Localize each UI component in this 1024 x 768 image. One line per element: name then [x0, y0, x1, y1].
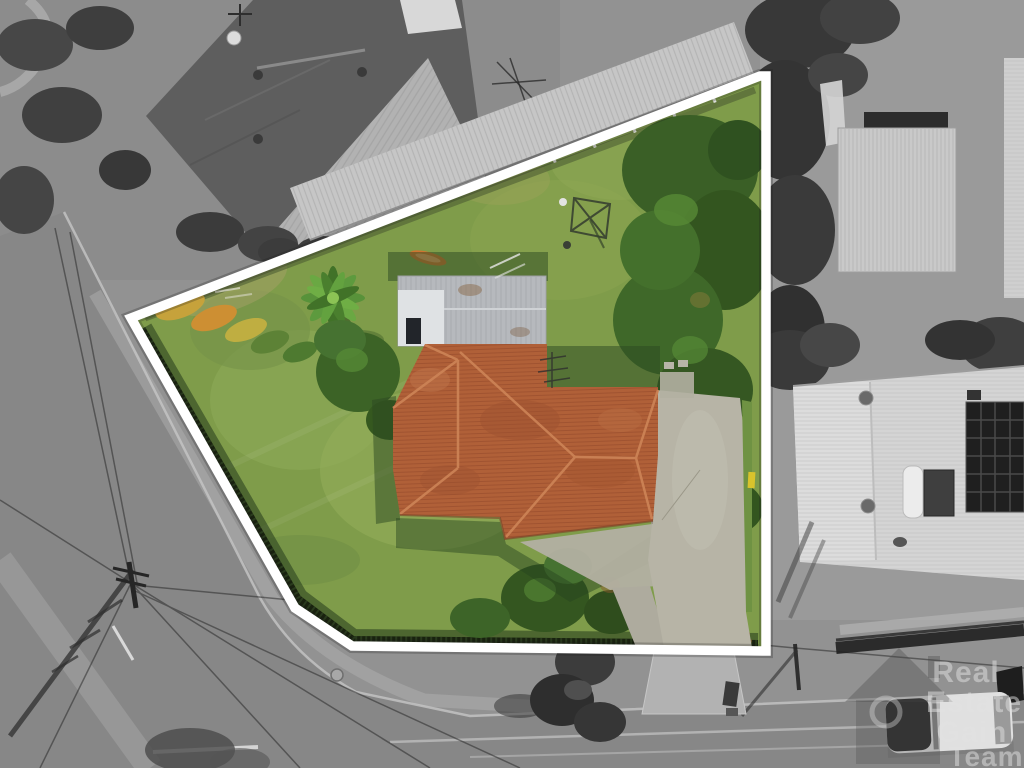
aerial-photo-canvas: Real Estate Gain Team [0, 0, 1024, 768]
garage-doorway [406, 318, 421, 344]
watermark-line-2: Estate [926, 686, 1022, 719]
manhole-cover [331, 669, 343, 681]
roof-vent [859, 391, 873, 405]
shed-shadow [864, 112, 948, 128]
watermark-line-1: Real [932, 656, 999, 689]
aerial-photo: Real Estate Gain Team [0, 0, 1024, 768]
hot-water-cylinder [903, 466, 923, 518]
satellite-dish [227, 31, 241, 45]
watermark-line-4: Team [948, 741, 1023, 768]
yellow-marker [748, 472, 756, 488]
white-roof-section [400, 0, 462, 34]
